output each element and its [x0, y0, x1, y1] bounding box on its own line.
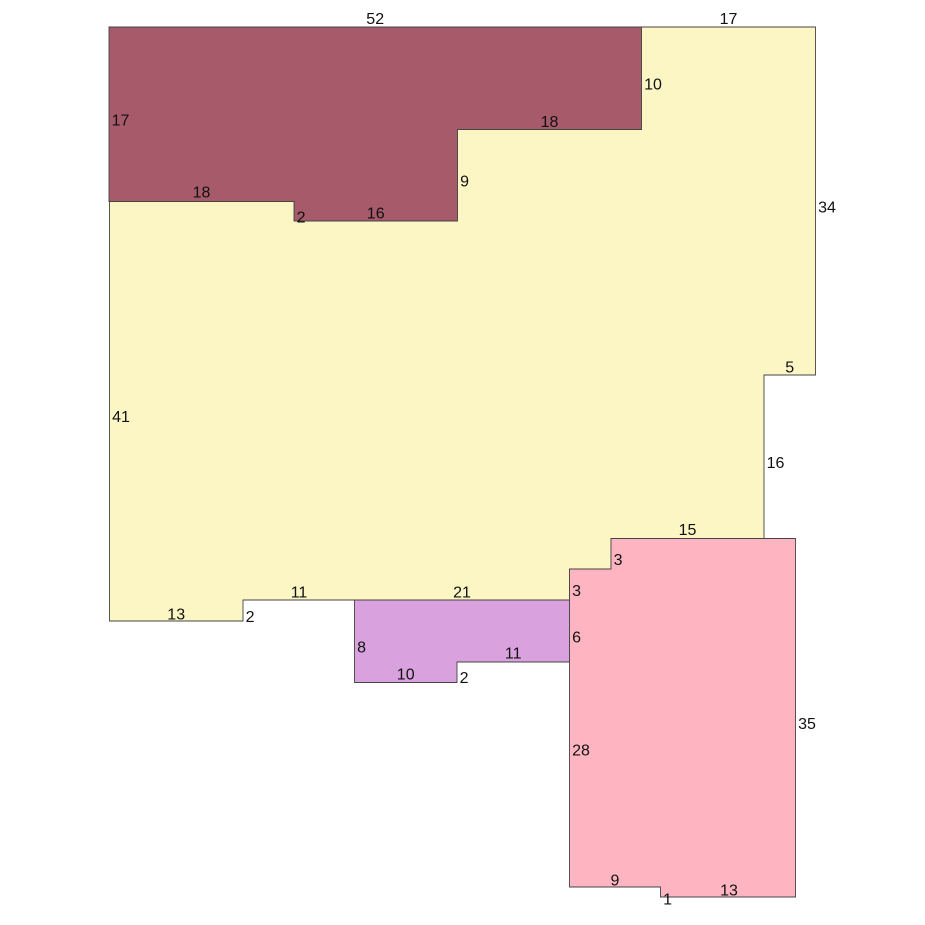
svg-text:17: 17 [720, 11, 738, 28]
svg-text:34: 34 [818, 199, 836, 216]
svg-text:13: 13 [167, 607, 185, 624]
svg-text:5: 5 [785, 360, 794, 377]
svg-text:3: 3 [614, 552, 623, 569]
svg-text:16: 16 [767, 455, 785, 472]
svg-text:2: 2 [297, 210, 306, 227]
svg-text:52: 52 [366, 11, 384, 28]
svg-text:3: 3 [572, 583, 581, 600]
svg-text:21: 21 [453, 585, 471, 602]
svg-text:8: 8 [357, 640, 366, 657]
svg-text:28: 28 [572, 743, 590, 760]
svg-text:13: 13 [720, 882, 738, 899]
svg-text:18: 18 [541, 114, 559, 131]
svg-text:11: 11 [291, 585, 308, 602]
svg-text:6: 6 [572, 629, 581, 646]
svg-text:2: 2 [246, 609, 255, 626]
svg-text:1: 1 [663, 891, 672, 908]
svg-text:35: 35 [798, 716, 816, 733]
svg-text:11: 11 [505, 646, 522, 663]
svg-text:15: 15 [679, 522, 697, 539]
svg-text:9: 9 [611, 873, 620, 890]
svg-text:10: 10 [397, 667, 415, 684]
svg-text:16: 16 [367, 206, 385, 223]
svg-text:10: 10 [644, 77, 662, 94]
svg-text:9: 9 [460, 174, 469, 191]
svg-text:41: 41 [112, 409, 130, 426]
svg-text:18: 18 [193, 185, 211, 202]
svg-text:17: 17 [112, 113, 130, 130]
svg-text:2: 2 [460, 670, 469, 687]
